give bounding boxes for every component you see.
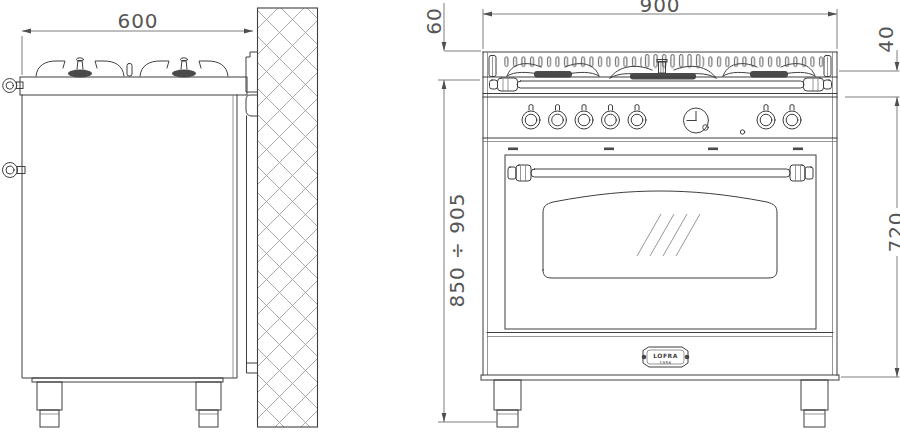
brand-badge: LOFRA 1956 [642,347,690,367]
front-leg-right [801,380,828,427]
oven-door-handle [508,165,813,181]
indicator-light [740,130,744,134]
badge-screw [685,355,690,360]
dimension-front-width: 900 [483,0,837,49]
front-view: LOFRA 1956 [481,52,839,427]
dimension-top-trim: 40 [839,25,900,71]
front-body [483,52,837,375]
dimension-height-range: 850 ÷ 905 [438,80,497,422]
control-knob [757,105,775,130]
technical-drawing-range-cooker: 600 [0,0,900,432]
control-panel [483,97,837,142]
badge-year-label: 1956 [659,360,671,365]
towel-rail [490,78,832,91]
arrowhead [22,29,31,34]
front-width-label: 900 [639,0,680,17]
bottom-panel: LOFRA 1956 [481,333,839,381]
control-knob [522,105,540,130]
hinge-slots [508,148,803,151]
badge-brand-label: LOFRA [653,352,678,359]
arrowhead [895,62,900,71]
dimension-body-height: 720 [841,97,900,377]
side-burner-right [140,58,228,78]
glass-reflection [637,214,700,256]
badge-screw [642,355,647,360]
control-knob [628,105,646,130]
side-body [22,95,237,382]
control-knob [602,105,620,130]
oven-door [505,155,816,329]
side-view [3,52,258,427]
arrowhead [442,42,447,51]
wall-hatch [258,8,318,427]
arrowhead [828,12,837,17]
arrowhead [442,80,447,89]
hob-top-label: 60 [422,7,446,34]
side-leg-rear [196,382,221,427]
control-knob [575,105,593,130]
arrowhead [895,368,900,377]
control-knob [783,105,801,130]
top-trim-label: 40 [874,25,898,52]
side-leg-front [37,382,62,427]
rear-spacer [246,52,257,373]
wall-section [258,8,318,427]
dimension-side-width: 600 [22,9,253,75]
arrowhead [244,29,253,34]
clock [684,108,709,133]
front-leg-left [494,380,521,427]
dimension-hob-top: 60 [422,3,481,51]
arrowhead [483,12,492,17]
control-knob [549,105,567,130]
side-worktop [20,77,247,95]
side-burner-left [36,58,124,78]
base-flange [481,375,839,380]
arrowhead [442,413,447,422]
side-grate-finger [127,64,132,77]
side-width-label: 600 [117,9,158,33]
height-range-label: 850 ÷ 905 [445,193,469,308]
oven-window [543,191,777,278]
body-height-label: 720 [884,211,900,252]
arrowhead [895,97,900,106]
